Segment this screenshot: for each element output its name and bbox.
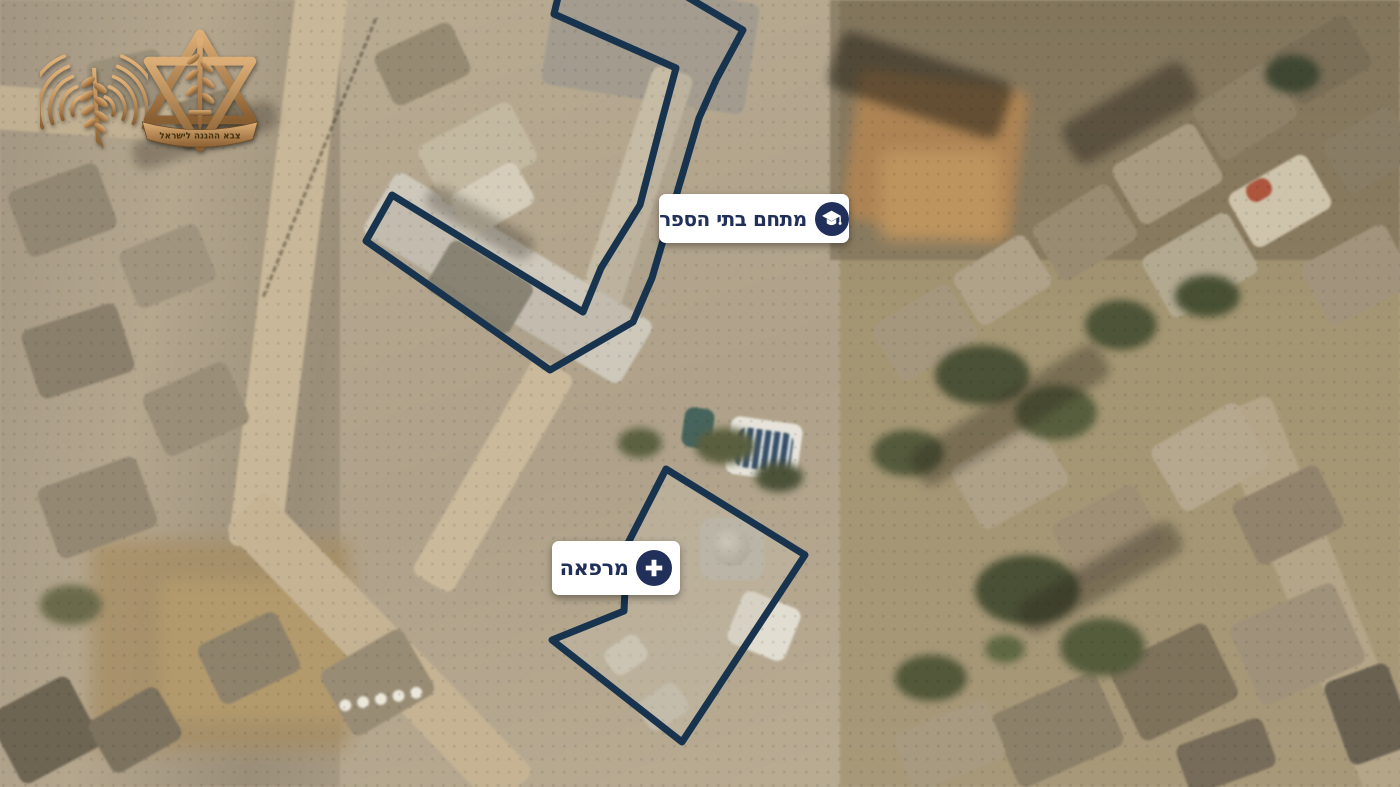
clinic-label-text: מרפאה [560,556,629,580]
vegetation [755,462,803,492]
idf-army-emblem: צבא ההגנה לישראל [136,26,264,158]
idf-emblem-ribbon-text: צבא ההגנה לישראל [159,131,240,141]
vegetation [40,585,102,625]
palm-tree [985,635,1025,663]
graduation-cap-icon [815,202,849,236]
school-compound-label: מתחם בתי הספר [659,194,849,243]
vegetation [695,428,755,464]
medical-cross-icon [636,550,672,586]
broadcast-frame: מתחם בתי הספר מרפאה [0,0,1400,787]
terrain-patch [880,150,1000,240]
vegetation [895,655,967,701]
school-compound-label-text: מתחם בתי הספר [659,207,807,231]
dome-roof [712,528,750,566]
vegetation [618,428,662,458]
clinic-label: מרפאה [552,541,680,595]
vegetation [1265,55,1320,93]
idf-spokesperson-radio-logo [40,30,148,150]
vegetation [1060,618,1145,676]
vegetation [1085,300,1157,350]
vegetation [1175,275,1240,317]
